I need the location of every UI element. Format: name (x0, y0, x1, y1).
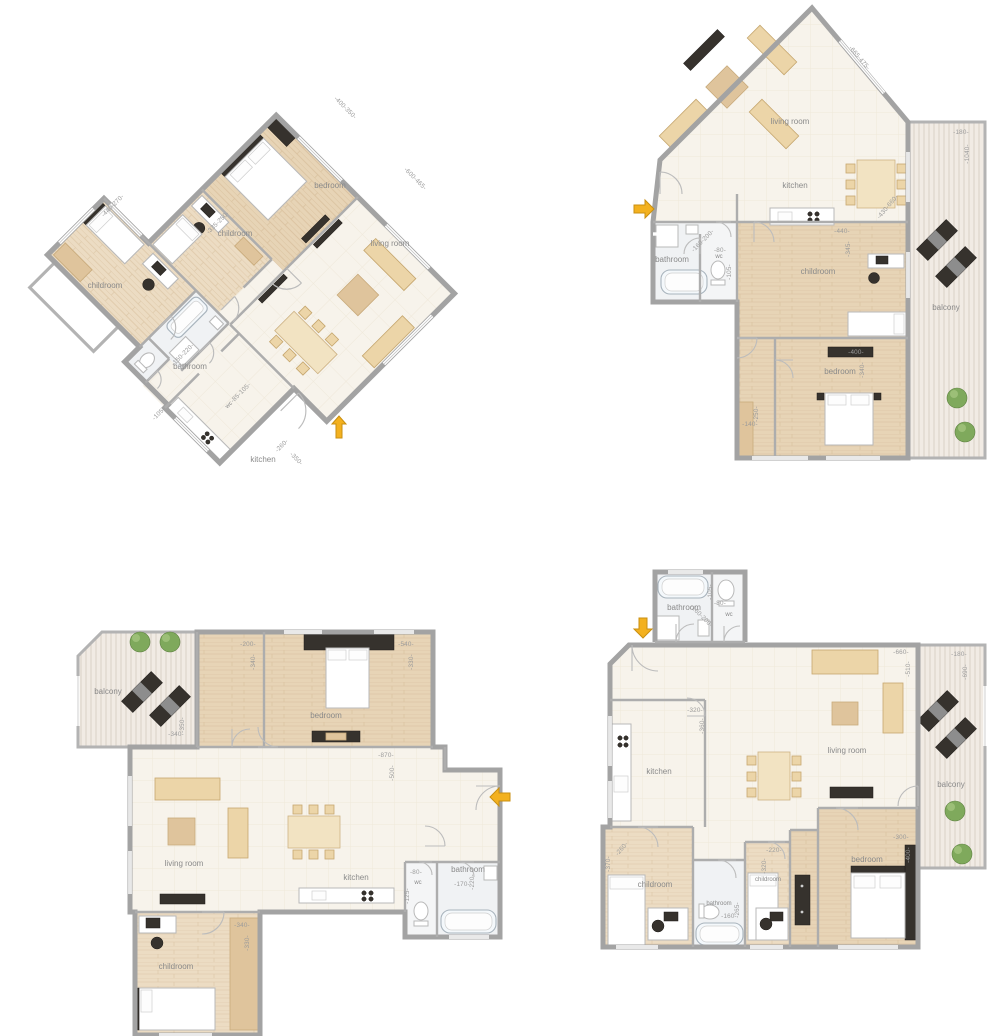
dim-label: -600-465- (402, 166, 428, 192)
dim-label: -400- (848, 349, 864, 356)
entry-arrow-icon-down (634, 618, 652, 638)
room-label-wc: wc (724, 612, 732, 618)
room-label-bathroom-mid: bathroom (706, 901, 731, 907)
floorplan-bottom-right-svg: bathroom wc kitchen living room balcony … (598, 556, 1000, 1036)
dim-label: -180- (953, 129, 969, 136)
entry-arrow-icon-up (332, 416, 346, 438)
floorplan-bottom-left: balcony bedroom living room kitchen wc b… (64, 626, 514, 1036)
floorplan-top-right: living room kitchen bathroom wc childroo… (612, 2, 1000, 477)
dim-label: -350- (288, 451, 304, 467)
dim-label: -1040- (964, 144, 971, 163)
room-label-balcony: balcony (932, 303, 960, 312)
room-label-living: living room (828, 746, 867, 755)
floorplan-top-left: childroom childroom bedroom living room … (10, 60, 490, 520)
dim-label: -170- (454, 881, 470, 888)
dim-label: -250- (753, 406, 760, 422)
dim-label: -500- (389, 765, 396, 781)
dim-label: -330- (244, 935, 251, 951)
dim-label: -220- (469, 874, 476, 890)
room-label-childroom-left: childroom (638, 880, 673, 889)
room-label-balcony: balcony (937, 780, 965, 789)
room-label-kitchen: kitchen (782, 181, 807, 190)
room-label-childroom: childroom (801, 267, 836, 276)
room-label-bedroom: bedroom (851, 855, 883, 864)
room-label-living: living room (371, 239, 410, 248)
dim-label: -340- (234, 922, 250, 929)
dim-label: -320- (761, 858, 768, 874)
dim-label: -340- (859, 362, 866, 378)
floorplan-top-right-svg: living room kitchen bathroom wc childroo… (612, 2, 1000, 477)
room-label-bedroom: bedroom (824, 367, 856, 376)
room-label-living: living room (165, 859, 204, 868)
room-label-kitchen: kitchen (250, 455, 275, 464)
room-label-bathroom: bathroom (451, 865, 485, 874)
dim-label: -320- (687, 707, 703, 714)
dim-label: -350- (179, 717, 186, 733)
dim-label: -340- (250, 654, 257, 670)
dim-label: -345- (845, 241, 852, 257)
dim-label: -400- (905, 847, 912, 863)
room-label-kitchen: kitchen (343, 873, 368, 882)
dim-label: -330- (408, 654, 415, 670)
room-label-wc: wc (714, 254, 722, 260)
floorplan-top-left-svg: childroom childroom bedroom living room … (10, 60, 490, 520)
dim-label: -105- (707, 584, 714, 600)
dim-label: -220- (766, 847, 782, 854)
room-label-bathroom: bathroom (655, 255, 689, 264)
room-label-balcony: balcony (94, 687, 122, 696)
dim-label: -80- (714, 247, 726, 254)
entry-arrow-icon-right (634, 200, 654, 218)
room-label-wc: wc (413, 880, 421, 886)
room-label-childroom: childroom (159, 962, 194, 971)
plan4-kitchen-counter (612, 724, 631, 821)
dim-label: -540- (398, 641, 414, 648)
plan3-kitchen-counter (299, 888, 394, 903)
floor-plans-sheet: { "page": {"title": "apartment floor pla… (0, 0, 1000, 1036)
dim-label: -360- (699, 718, 706, 734)
room-label-living: living room (771, 117, 810, 126)
dim-label: -125- (404, 888, 411, 904)
room-label-childroom-left: childroom (88, 281, 123, 290)
dim-label: -370- (605, 856, 612, 872)
dim-label: -200- (240, 641, 256, 648)
dim-label: -180- (951, 651, 967, 658)
dim-label: -400-350- (332, 95, 358, 121)
dim-label: -80- (714, 600, 726, 607)
dim-label: -440- (834, 228, 850, 235)
dim-label: -300- (893, 834, 909, 841)
dim-label: -80- (410, 869, 422, 876)
dim-label: -660- (893, 649, 909, 656)
floorplan-bottom-right: bathroom wc kitchen living room balcony … (598, 556, 1000, 1036)
room-label-childroom-mid: childroom (755, 877, 781, 883)
room-label-bedroom: bedroom (310, 711, 342, 720)
room-label-bedroom: bedroom (314, 181, 346, 190)
dim-label: -510- (905, 661, 912, 677)
dim-label: -870- (378, 752, 394, 759)
room-label-childroom-mid: childroom (218, 229, 253, 238)
dim-label: -260- (274, 438, 290, 454)
dim-label: -265- (734, 902, 741, 918)
floorplan-bottom-left-svg: balcony bedroom living room kitchen wc b… (64, 626, 514, 1036)
dim-label: -690- (962, 664, 969, 680)
dim-label: -105- (726, 264, 733, 280)
room-label-kitchen: kitchen (646, 767, 671, 776)
